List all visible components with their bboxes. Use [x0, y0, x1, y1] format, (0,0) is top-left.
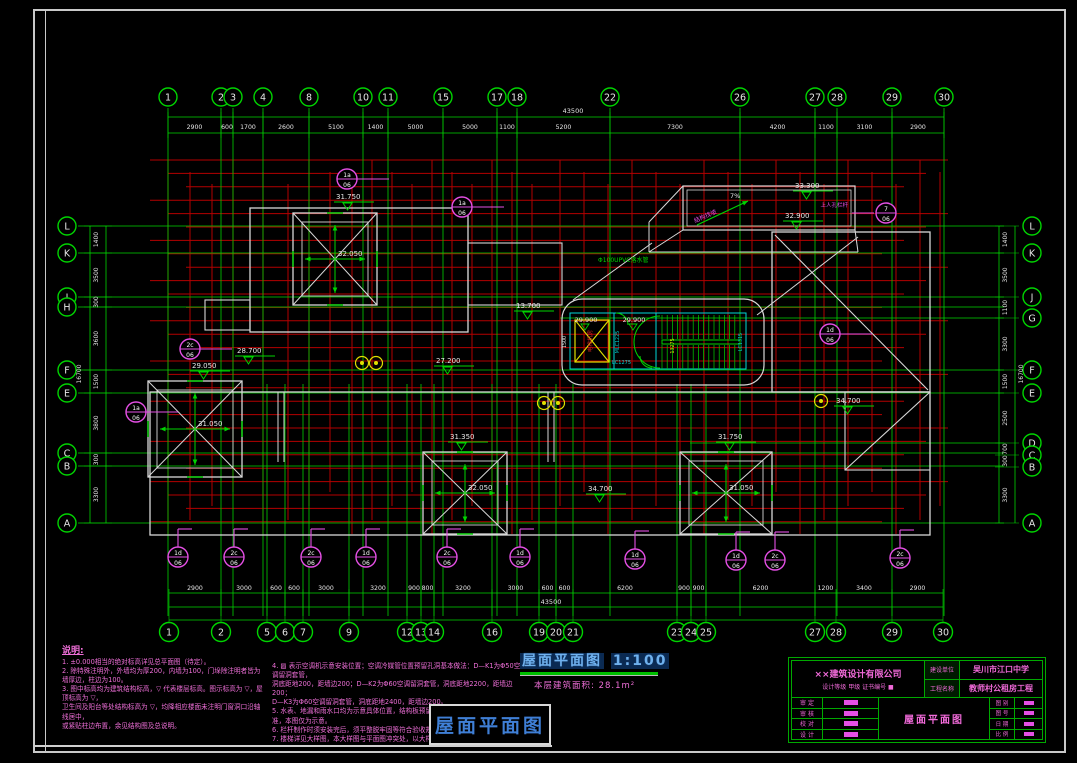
- project-label: 工程名称: [925, 680, 960, 698]
- note-line: 3. 图中标高均为建筑结构标高，▽ 代表楼层标高。图示标高为 ▽，屋顶标高为 ▽…: [62, 685, 266, 703]
- meta-label: 图 号: [990, 709, 1015, 719]
- signature-stamp: [844, 711, 858, 716]
- signature-row: 设 计: [792, 730, 878, 740]
- sheet-border-inner: [45, 9, 46, 753]
- note-line: 或紧贴柱边布置，余见结构图及总说明。: [62, 722, 266, 731]
- drawing-name-tag: 屋面平面图: [429, 704, 551, 745]
- plan-title-underline: [520, 672, 658, 676]
- floor-area-label: 本层建筑面积: 28.1m²: [534, 679, 635, 691]
- signature-stamp-cell: [823, 709, 878, 719]
- signature-row: 审 定: [792, 698, 878, 709]
- meta-row: 比 例: [990, 730, 1042, 740]
- company-sub: 设计等级 甲级 证书编号 ■: [822, 682, 893, 691]
- signature-row: 校 对: [792, 719, 878, 730]
- signature-stamp-cell: [823, 730, 878, 740]
- signature-stamp: [844, 732, 858, 737]
- tag-underline: [35, 745, 552, 747]
- meta-stamp: [1024, 711, 1034, 715]
- signature-row: 审 核: [792, 709, 878, 720]
- signature-stamp-cell: [823, 719, 878, 729]
- project-row: 工程名称 教师村公租房工程: [925, 679, 1042, 698]
- drawing-title-text: 屋面平面图: [904, 711, 964, 726]
- company-name: ××建筑设计有限公司: [814, 667, 901, 680]
- note-line: 4. ▨ 表示空调机示意安装位置；空调冷媒管位置预留孔洞基本做法：D—K1为Φ5…: [272, 662, 524, 680]
- meta-stamp-cell: [1015, 732, 1042, 736]
- drawing-name-tag-text: 屋面平面图: [435, 711, 545, 738]
- signature-grid: 审 定审 核校 对设 计: [792, 698, 879, 739]
- signature-label: 设 计: [792, 730, 823, 740]
- meta-stamp-cell: [1015, 711, 1042, 715]
- company-cell: ××建筑设计有限公司 设计等级 甲级 证书编号 ■: [792, 661, 925, 697]
- client-row: 建设单位 吴川市江口中学: [925, 661, 1042, 679]
- sheet-border: [33, 9, 1066, 753]
- meta-stamp: [1024, 701, 1034, 705]
- signature-stamp: [844, 721, 858, 726]
- meta-stamp-cell: [1015, 701, 1042, 705]
- notes-column-left: 1. ±0.000相当的绝对标高详见总平面图（待定）。2. 除特殊注明外，外墙均…: [62, 658, 266, 744]
- plan-title-text: 屋面平面图: [520, 653, 604, 669]
- meta-grid: 图 别图 号日 期比 例: [990, 698, 1042, 739]
- project-value: 教师村公租房工程: [960, 683, 1042, 694]
- meta-label: 图 别: [990, 698, 1015, 708]
- meta-stamp: [1024, 722, 1034, 726]
- meta-stamp: [1024, 732, 1034, 736]
- client-label: 建设单位: [925, 661, 960, 679]
- note-line: 洞底距地200，距墙边200；D—K2为Φ60空调留洞套管，洞底距地2200，距…: [272, 680, 524, 698]
- meta-label: 日 期: [990, 719, 1015, 729]
- plan-title: 屋面平面图 1:100: [520, 650, 669, 676]
- meta-row: 日 期: [990, 719, 1042, 730]
- meta-row: 图 号: [990, 709, 1042, 720]
- meta-label: 比 例: [990, 730, 1015, 740]
- note-line: 卫生间及阳台等处结构标高为 ▽，均降相应楼面未注明门窗洞口沿轴线居中，: [62, 703, 266, 721]
- signature-label: 审 定: [792, 698, 823, 708]
- plan-title-scale: 1:100: [611, 653, 670, 669]
- drawing-title-cell: 屋面平面图: [879, 698, 990, 739]
- client-value: 吴川市江口中学: [960, 664, 1042, 675]
- note-line: 2. 除特殊注明外，外墙均为厚200，内墙为100，门垛除注明者皆为墙厚边，柱边…: [62, 667, 266, 685]
- notes-heading: 说明:: [62, 643, 527, 656]
- meta-row: 图 别: [990, 698, 1042, 709]
- cad-sheet: 1234810111517182226272829302900600170026…: [0, 0, 1077, 763]
- note-line: 1. ±0.000相当的绝对标高详见总平面图（待定）。: [62, 658, 266, 667]
- meta-stamp-cell: [1015, 722, 1042, 726]
- title-block: ××建筑设计有限公司 设计等级 甲级 证书编号 ■ 建设单位 吴川市江口中学 工…: [788, 657, 1046, 743]
- signature-label: 校 对: [792, 719, 823, 729]
- signature-stamp-cell: [823, 698, 878, 708]
- signature-stamp: [844, 700, 858, 705]
- signature-label: 审 核: [792, 709, 823, 719]
